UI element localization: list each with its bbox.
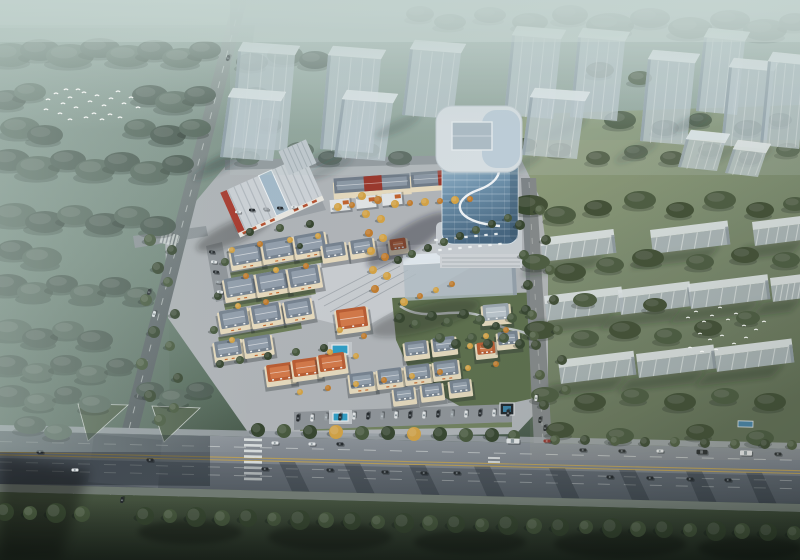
aerial-rendering-canvas bbox=[0, 0, 800, 560]
scene-svg bbox=[0, 0, 800, 560]
vignette-bottom bbox=[0, 500, 800, 560]
color-grade bbox=[0, 0, 800, 560]
atmosphere bbox=[0, 0, 800, 560]
